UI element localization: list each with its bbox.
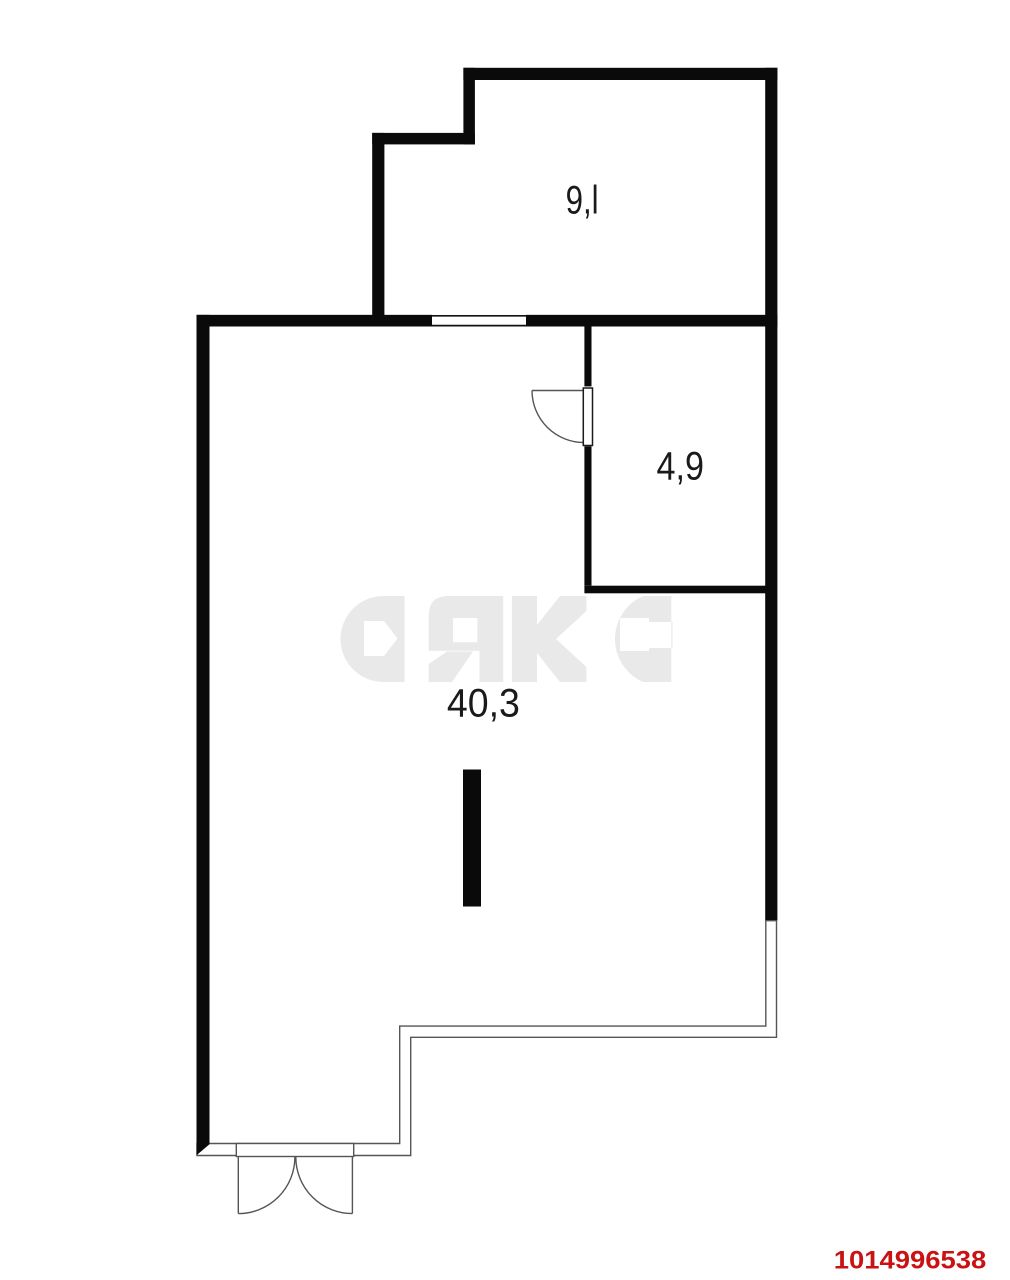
svg-text:4,9: 4,9 bbox=[657, 445, 705, 489]
svg-text:9,l: 9,l bbox=[566, 179, 599, 223]
svg-text:1014996538: 1014996538 bbox=[834, 1247, 987, 1275]
svg-text:40,3: 40,3 bbox=[447, 682, 520, 726]
